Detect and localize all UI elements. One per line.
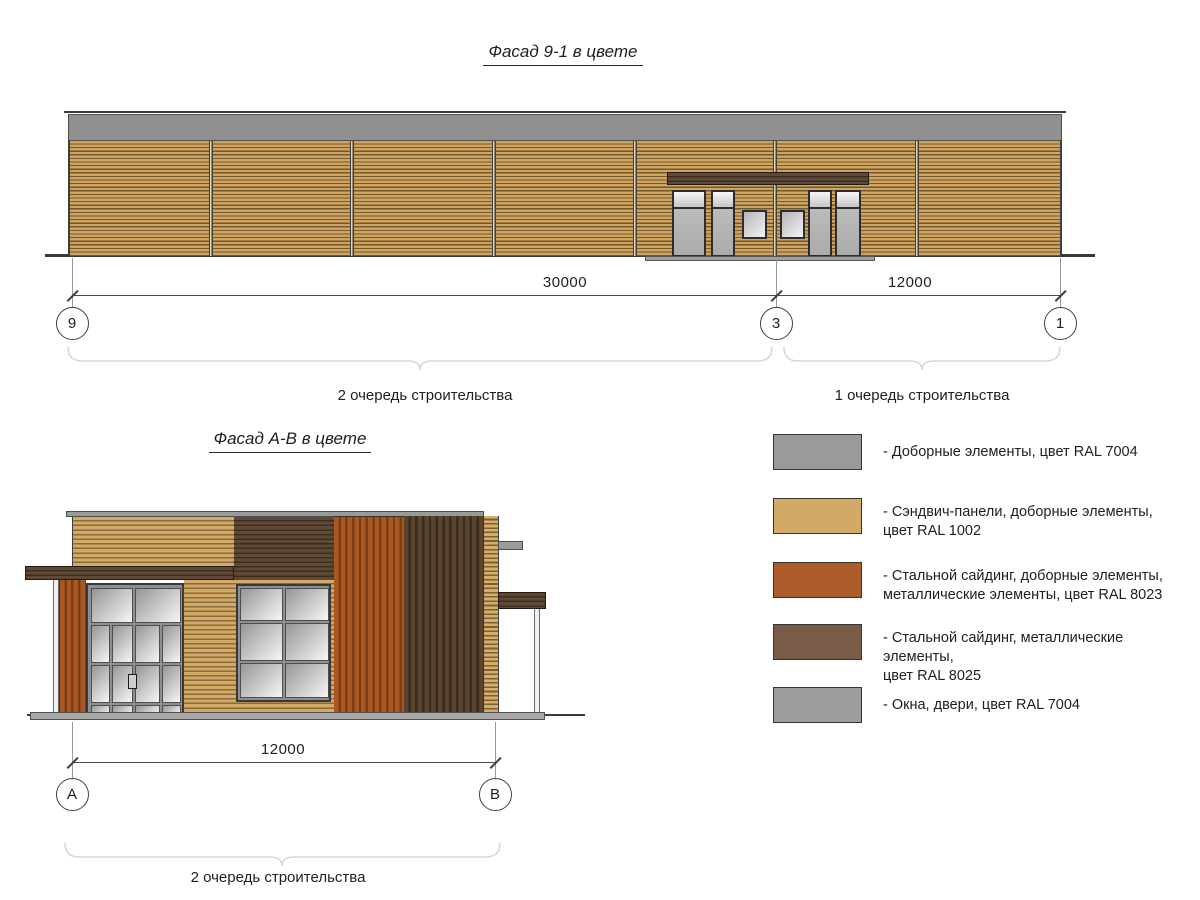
dimension-line (72, 295, 1060, 296)
phase-brace-left (60, 346, 780, 376)
door-transom (713, 192, 733, 209)
legend-swatch-ral7004 (773, 434, 862, 470)
dimension-value-12000: 12000 (830, 274, 990, 291)
door-transom (837, 192, 859, 209)
glass-pane (135, 665, 160, 703)
axis-extension-3 (776, 258, 777, 307)
axis-circle-9: 9 (56, 307, 89, 340)
glass-pane (135, 625, 160, 663)
axis-extension-9 (72, 258, 73, 307)
glass-pane (240, 588, 283, 621)
large-window (236, 584, 331, 702)
corner-strip-tan-ral1002 (483, 516, 499, 717)
phase-brace-right (776, 346, 1068, 376)
legend-label-windows-ral7004: - Окна, двери, цвет RAL 7004 (883, 696, 1195, 715)
panel-joint (492, 141, 496, 256)
vertical-siding-orange-ral8023 (334, 516, 404, 717)
siding-wall-ral1002 (68, 141, 1062, 256)
legend-label-ral7004: - Доборные элементы, цвет RAL 7004 (883, 443, 1195, 462)
parapet-band-ral7004 (68, 114, 1062, 141)
wall-strip-tan-ral1002 (184, 580, 234, 717)
porch-post (534, 609, 540, 714)
glass-pane (91, 665, 110, 703)
door-narrow-left (711, 190, 735, 257)
vertical-siding-brown-ral8025 (404, 516, 483, 717)
axis-extension-1 (1060, 258, 1061, 307)
small-window (780, 210, 805, 239)
glass-pane (240, 663, 283, 698)
panel-joint (915, 141, 919, 256)
axis-extension-a (72, 722, 73, 778)
base-plinth (30, 712, 545, 720)
panel-joint (209, 141, 213, 256)
wall-bracket (498, 541, 523, 550)
legend-swatch-ral1002 (773, 498, 862, 534)
entrance-glazing (86, 583, 184, 717)
phase-label-2: 2 очередь строительства (275, 387, 575, 404)
glass-pane (162, 665, 181, 703)
door-narrow-right (808, 190, 832, 257)
axis-extension-b (495, 722, 496, 778)
dimension-value-30000: 30000 (485, 274, 645, 291)
door-transom (674, 192, 704, 209)
legend-swatch-windows-ral7004 (773, 687, 862, 723)
glass-pane (112, 625, 133, 663)
dimension-line (72, 762, 495, 763)
porch-canopy-ral8025 (498, 592, 546, 609)
axis-circle-3: 3 (760, 307, 793, 340)
legend-swatch-ral8025 (773, 624, 862, 660)
entrance-threshold (645, 256, 875, 261)
axis-circle-1: 1 (1044, 307, 1077, 340)
phase-joint-axis-3 (773, 141, 777, 256)
glass-pane (285, 623, 329, 661)
glass-pane (285, 663, 329, 698)
legend-label-ral8023: - Стальной сайдинг, доборные элементы, м… (883, 567, 1195, 605)
drawing-sheet: Фасад 9-1 в цвете 30000 12000 9 3 (0, 0, 1200, 900)
panel-joint (350, 141, 354, 256)
entrance-canopy-ral8025 (667, 172, 869, 185)
legend-swatch-ral8023 (773, 562, 862, 598)
panel-joint (633, 141, 637, 256)
glass-pane (135, 588, 181, 623)
upper-band-brown-ral8025 (234, 517, 334, 580)
corner-column-orange-ral8023 (59, 580, 86, 717)
facade-a-b-drawing: 12000 А В (0, 420, 760, 900)
door-wide-right (835, 190, 861, 257)
axis-circle-a: А (56, 778, 89, 811)
phase-brace-bottom (57, 842, 508, 872)
phase-label-bottom: 2 очередь строительства (128, 869, 428, 886)
roof-edge-line (64, 111, 1066, 113)
door-transom (810, 192, 830, 209)
glass-pane (91, 625, 110, 663)
upper-band-tan-ral1002 (72, 517, 234, 566)
small-window (742, 210, 767, 239)
legend-label-ral8025: - Стальной сайдинг, металлические элемен… (883, 629, 1195, 686)
glass-pane (240, 623, 283, 661)
facade-9-1-drawing: 30000 12000 9 3 1 (0, 0, 1200, 340)
dimension-value-12000: 12000 (203, 741, 363, 758)
glass-pane (285, 588, 329, 621)
door-handle (128, 674, 137, 689)
glass-pane (91, 588, 133, 623)
door-wide-left (672, 190, 706, 257)
legend-label-ral1002: - Сэндвич-панели, доборные элементы, цве… (883, 503, 1195, 541)
phase-label-1: 1 очередь строительства (772, 387, 1072, 404)
glass-pane (162, 625, 181, 663)
entrance-canopy-ral8025 (25, 566, 234, 580)
axis-circle-b: В (479, 778, 512, 811)
